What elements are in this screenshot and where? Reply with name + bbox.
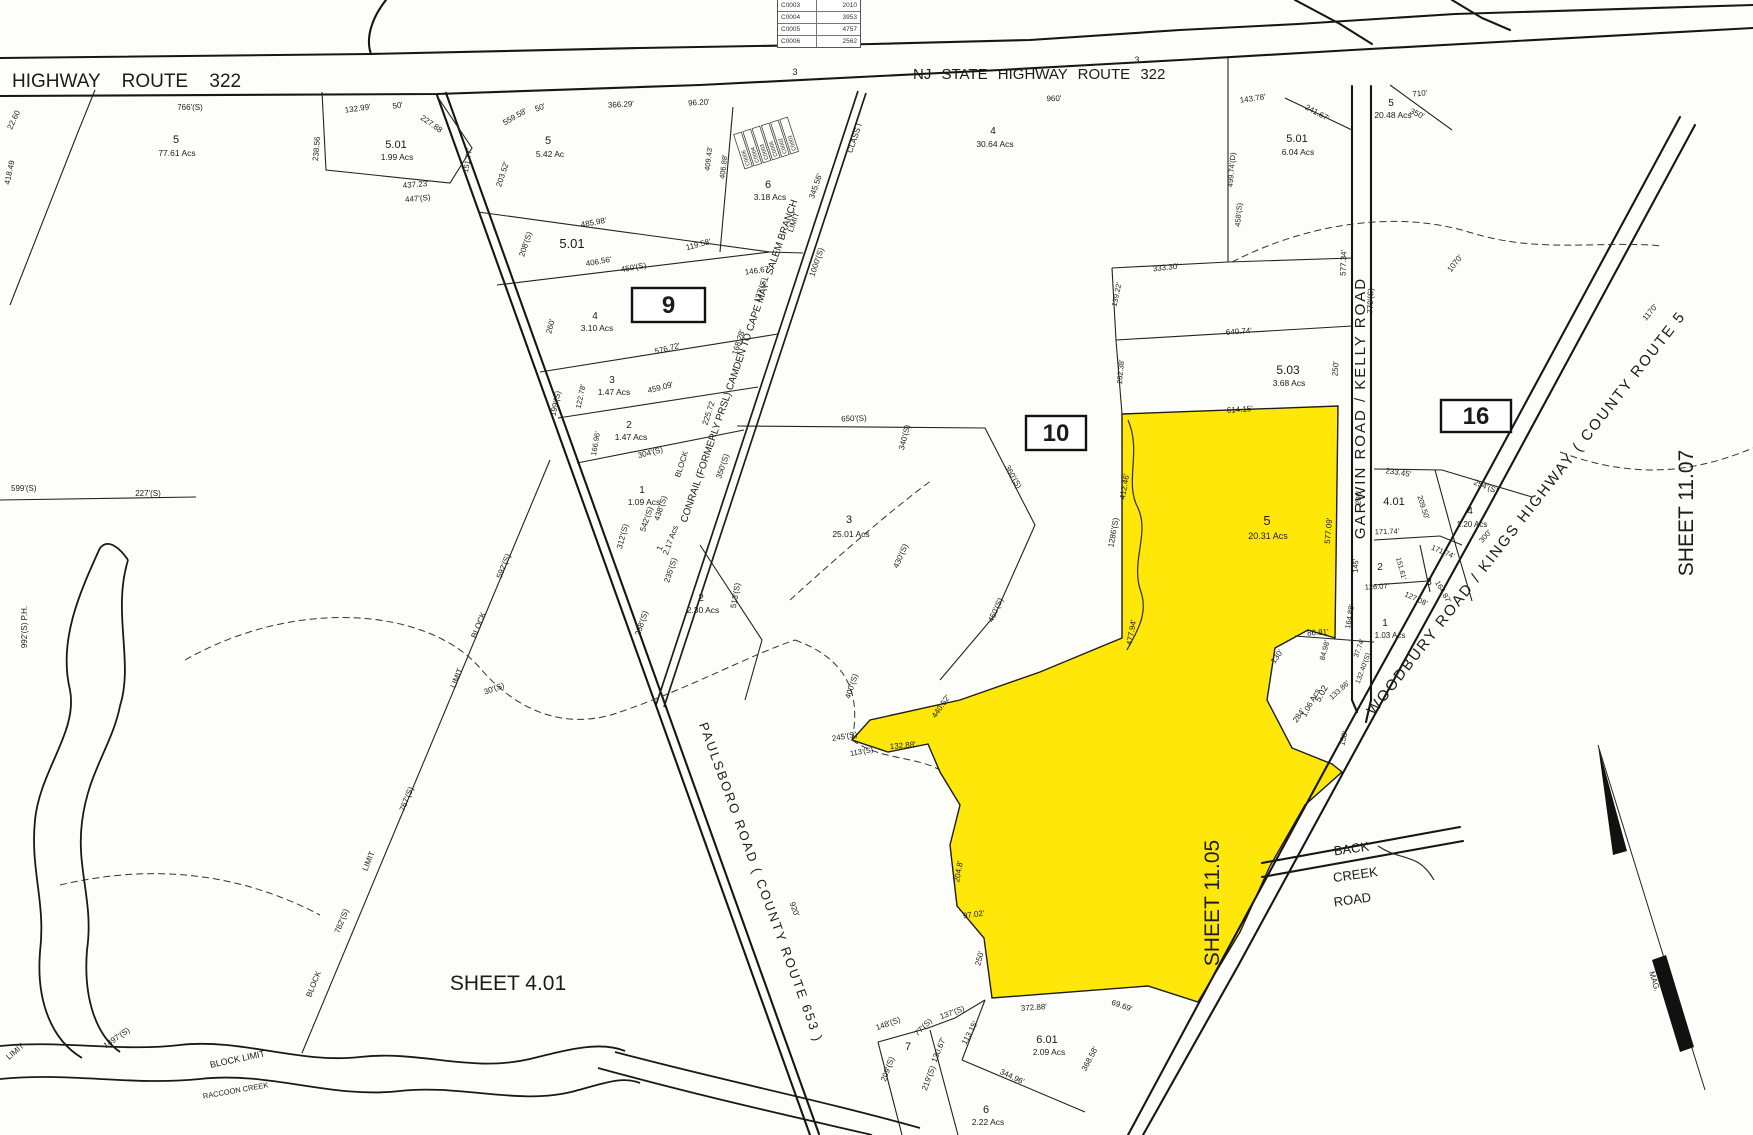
road-back-creek-2: CREEK bbox=[1332, 864, 1379, 885]
dim-203-52: 203.52' bbox=[494, 160, 511, 188]
dim-166-96: 166.96' bbox=[589, 430, 602, 456]
lot5-ne-acres: 20.48 Acs bbox=[1374, 110, 1411, 120]
road-back-creek-1: BACK bbox=[1333, 839, 1370, 859]
block-16-label: 16 bbox=[1441, 400, 1511, 432]
dim-430-s: 430'(S) bbox=[891, 542, 910, 569]
b10-lot2-acres: 2.30 Acs bbox=[687, 605, 720, 615]
unit-value-cell: 2010 bbox=[817, 0, 860, 11]
b10-lot503-acres: 3.68 Acs bbox=[1273, 378, 1306, 388]
b9-lot1-acres: 1.09 Acs bbox=[628, 497, 661, 507]
unit-id-cell: C0006 bbox=[778, 36, 817, 47]
sheet-11-05: SHEET 11.05 bbox=[1201, 840, 1224, 966]
dim-69-69: 69.69' bbox=[1110, 998, 1134, 1014]
dim-164-88: 164.88' bbox=[1343, 603, 1356, 629]
dim-238-56: 238.56 bbox=[311, 136, 322, 162]
dim-139-22: 139.22' bbox=[1110, 281, 1124, 307]
map-line-pline-39 bbox=[1435, 470, 1455, 543]
dim-145: 145' bbox=[1351, 558, 1361, 573]
condo-unit-id: C0005 bbox=[769, 140, 780, 157]
dim-710: 710' bbox=[1412, 88, 1428, 98]
sheet-11-07: SHEET 11.07 bbox=[1675, 450, 1698, 576]
condo-unit-id: C0004 bbox=[750, 146, 761, 163]
dim-650-s: 650'(S) bbox=[841, 414, 867, 424]
unit-id-cell: C0005 bbox=[778, 24, 817, 35]
b10-lot601-num: 6.01 bbox=[1036, 1034, 1057, 1046]
map-line-road-4 bbox=[369, 0, 386, 54]
unit-value-cell: 4757 bbox=[817, 24, 860, 35]
blk-limit-w-2: BLOCK bbox=[469, 610, 488, 639]
map-line-pline-46 bbox=[878, 1042, 902, 1135]
b16-lot4-num: 4 bbox=[1467, 506, 1473, 517]
map-line-creek-61 bbox=[81, 560, 128, 1052]
b9-lot4-acres: 3.10 Acs bbox=[581, 323, 614, 333]
block-10-label-number: 10 bbox=[1043, 420, 1070, 447]
dim-459-09: 459.09' bbox=[647, 380, 675, 395]
condo-unit-id: C0006 bbox=[741, 149, 752, 166]
dim-241-67: 241.67' bbox=[1304, 103, 1332, 123]
dim-372-88: 372.88' bbox=[1021, 1002, 1048, 1013]
map-line-dash-53 bbox=[1232, 221, 1662, 262]
unit-value-cell: 2562 bbox=[817, 36, 860, 47]
blk-limit-w-1: 592'(S) bbox=[495, 552, 513, 579]
dim-200: 200' bbox=[1354, 490, 1364, 505]
blk-limit-w-3: LIMIT bbox=[449, 667, 465, 689]
dim-233-45: 233.45' bbox=[1385, 466, 1412, 479]
unit-id-cell: C0003 bbox=[778, 0, 817, 11]
blk-limit-creek: BLOCK LIMIT bbox=[209, 1048, 266, 1070]
assessment-table-row: C00032010 bbox=[778, 0, 860, 11]
dim-171-74-b: 171.74' bbox=[1430, 543, 1456, 561]
dim-599-s: 599'(S) bbox=[11, 484, 37, 493]
dim-96-20: 96.20' bbox=[688, 97, 710, 107]
map-line-creek-64 bbox=[0, 1077, 640, 1096]
dim-400-s: 400'(S) bbox=[843, 672, 860, 699]
condo-unit-id: C0001 bbox=[787, 134, 798, 151]
block-10-label: 10 bbox=[1026, 416, 1086, 450]
dim-209-50: 209.50' bbox=[1415, 494, 1431, 520]
dim-262-38: 262.38' bbox=[1115, 359, 1126, 385]
dim-50-b: 50' bbox=[534, 101, 547, 113]
route-marker-3b: 3 bbox=[1134, 55, 1139, 65]
dim-151-61: 151.61' bbox=[1394, 557, 1407, 581]
b9-lot1-num: 1 bbox=[639, 485, 645, 496]
hwy-322-right: NJ STATE HIGHWAY ROUTE 322 bbox=[913, 66, 1165, 83]
map-line-pline-45 bbox=[962, 1060, 1085, 1112]
block-9-label: 9 bbox=[632, 288, 705, 322]
dim-126-07: 126.07' bbox=[1364, 581, 1389, 591]
dim-770-s: 770'(S) bbox=[1366, 288, 1376, 314]
dim-450-s-b: 450'(S) bbox=[986, 596, 1005, 623]
blk-limit-s-1: BLOCK bbox=[304, 969, 323, 998]
map-line-creek-57 bbox=[615, 1052, 920, 1128]
blk-limit-rr: BLOCK bbox=[673, 449, 690, 478]
dim-458-s: 458'(S) bbox=[1233, 202, 1244, 227]
b9-lot5-acres: 5.42 Ac bbox=[536, 149, 565, 159]
b9-lot5-num: 5 bbox=[545, 135, 551, 147]
assessment-table-row: C00043953 bbox=[778, 11, 860, 23]
dim-86-81: 86.81' bbox=[1307, 627, 1329, 637]
dim-209-s: 209'(S) bbox=[879, 1055, 896, 1082]
b9-lot4-num: 4 bbox=[592, 311, 598, 322]
map-line-pline-27 bbox=[1228, 258, 1352, 262]
dim-559-58: 559.58' bbox=[501, 106, 528, 127]
lot501-west-num: 5.01 bbox=[385, 139, 406, 151]
map-line-road-1 bbox=[0, 28, 1753, 96]
dim-235-s: 235'(S) bbox=[662, 556, 679, 583]
b10-lot4-acres: 30.64 Acs bbox=[976, 139, 1013, 149]
dim-84-98: 84.98' bbox=[1318, 639, 1332, 661]
raccoon-creek: RACCOON CREEK bbox=[202, 1080, 269, 1100]
dim-767-s: 767'(S) bbox=[398, 785, 416, 812]
block-9-label-number: 9 bbox=[662, 292, 675, 319]
hwy-322-left: HIGHWAY ROUTE 322 bbox=[12, 71, 241, 92]
assessment-table-row: C00054757 bbox=[778, 23, 860, 35]
dim-345-56: 345.56' bbox=[807, 172, 824, 200]
map-line-creek-60 bbox=[34, 548, 100, 1058]
dim-312-s: 312'(S) bbox=[615, 523, 630, 550]
sheet-4-01: SHEET 4.01 bbox=[450, 972, 566, 995]
b16-lot1-num: 1 bbox=[1382, 618, 1388, 629]
unit-id-cell: C0004 bbox=[778, 12, 817, 23]
dim-113-15: 113.15' bbox=[960, 1019, 980, 1046]
map-line-dash-48 bbox=[60, 874, 320, 915]
b16-lot2: 2 bbox=[1377, 562, 1383, 573]
b16-lot1-acres: 1.03 Acs bbox=[1375, 631, 1406, 640]
map-line-pline-25 bbox=[302, 460, 550, 1053]
dim-418-49: 418.49 bbox=[3, 159, 17, 185]
dim-127-08: 127.08' bbox=[1403, 590, 1429, 609]
b10-lot503-num: 5.03 bbox=[1276, 363, 1300, 377]
lot5-ne-num: 5 bbox=[1388, 98, 1394, 109]
b16-lot3: 3 bbox=[1426, 577, 1432, 588]
route-marker-3a: 3 bbox=[792, 67, 797, 77]
b10-lot6-acres: 2.22 Acs bbox=[972, 1117, 1005, 1127]
dim-513-s: 513'(S) bbox=[729, 582, 742, 609]
dim-1170: 1170' bbox=[1641, 302, 1660, 322]
dim-1070: 1070' bbox=[1446, 253, 1465, 274]
dim-485-98: 485.98' bbox=[580, 216, 608, 229]
b10-lot6-num: 6 bbox=[983, 1104, 989, 1116]
dim-133-86: 133.86' bbox=[1327, 678, 1352, 701]
dim-640-74: 640.74' bbox=[1226, 326, 1253, 337]
dim-344-96: 344.96' bbox=[998, 1067, 1026, 1086]
dim-148-s: 148'(S) bbox=[875, 1015, 902, 1032]
dim-219-s: 219'(S) bbox=[920, 1064, 937, 1091]
dim-227-88: 227.88 bbox=[419, 113, 445, 135]
dim-122-78: 122.78' bbox=[574, 383, 588, 409]
dim-113-s: 113'(S) bbox=[849, 745, 874, 758]
map-line-dash-52 bbox=[790, 480, 932, 600]
dim-499-74: 499.74'(D) bbox=[1226, 152, 1238, 188]
dim-447-s: 447'(S) bbox=[405, 193, 432, 204]
map-line-pline-15 bbox=[10, 90, 95, 305]
b16-lot501-acres: 6.04 Acs bbox=[1282, 147, 1315, 157]
b10-lot1-acres: 2.17 Acs bbox=[661, 524, 680, 556]
b9-lot6-num: 6 bbox=[765, 179, 771, 191]
map-line-road-0 bbox=[0, 5, 1753, 58]
dim-132-88: 132.88' bbox=[889, 740, 916, 751]
dim-1286-s: 1286'(S) bbox=[1107, 517, 1121, 548]
b10-lot3-acres: 25.01 Acs bbox=[832, 529, 869, 539]
dim-208-s: 208'(S) bbox=[517, 230, 534, 257]
road-woodbury-kings: WOODBURY ROAD / KINGS HIGHWAY ( COUNTY R… bbox=[1363, 308, 1689, 718]
dim-30-s: 30'(S) bbox=[483, 681, 506, 697]
block-16-label-number: 16 bbox=[1463, 403, 1490, 430]
dim-250-b: 250' bbox=[973, 950, 986, 967]
map-line-pline-17 bbox=[0, 497, 196, 500]
b10-lot7: 7 bbox=[905, 1041, 911, 1053]
b10-lot4-num: 4 bbox=[990, 126, 996, 137]
dim-171-74-a: 171.74' bbox=[1375, 527, 1400, 537]
map-line-pline-32 bbox=[737, 426, 1035, 680]
b10-lot5-acres: 20.31 Acs bbox=[1248, 531, 1288, 541]
map-line-road-3 bbox=[1452, 0, 1510, 30]
b9-lot2-num: 2 bbox=[626, 420, 632, 431]
dim-406-88: 406.88' bbox=[718, 153, 730, 179]
condo-unit-id: C0003 bbox=[760, 143, 771, 160]
assessment-table-row: C00062562 bbox=[778, 35, 860, 47]
blk-limit-s-2: LIMIT bbox=[361, 850, 377, 872]
dim-366-29: 366.29' bbox=[608, 99, 635, 109]
assessment-table: C00032010C00043953C00054757C00062562 bbox=[777, 0, 861, 48]
dim-143-78: 143.78' bbox=[1239, 92, 1266, 105]
dim-300: 300' bbox=[1477, 528, 1493, 545]
b16-lot4-acres: 1.20 Acs bbox=[1457, 520, 1488, 529]
b10-lot601-acres: 2.09 Acs bbox=[1033, 1047, 1066, 1057]
dim-614-15: 614.15' bbox=[1227, 404, 1254, 415]
b10-lot2-num: 2 bbox=[698, 593, 704, 604]
lot5-west-num: 5 bbox=[173, 134, 179, 146]
dim-920: 920' bbox=[788, 901, 802, 919]
dim-22-60: 22.60 bbox=[5, 108, 22, 130]
highlighted-parcel[interactable] bbox=[852, 406, 1342, 1002]
dim-132-99: 132.99' bbox=[344, 102, 371, 115]
b16-lot401: 4.01 bbox=[1383, 496, 1404, 508]
dim-992-s: 992'(S) P.H. bbox=[20, 606, 29, 648]
unit-value-cell: 3953 bbox=[817, 12, 860, 23]
lot5-west-acres: 77.61 Acs bbox=[158, 148, 195, 158]
dim-360-s: 360'(S) bbox=[1003, 463, 1024, 490]
dim-260: 260' bbox=[544, 318, 557, 335]
b9-lot2-acres: 1.47 Acs bbox=[615, 432, 648, 442]
dim-450-s-a: 450'(S) bbox=[620, 261, 647, 274]
dim-304-s: 304'(S) bbox=[637, 445, 664, 460]
dim-782-s: 782'(S) bbox=[333, 907, 351, 934]
map-line-dash-54 bbox=[1560, 448, 1753, 470]
dim-50-a: 50' bbox=[392, 100, 404, 110]
dim-960: 960' bbox=[1046, 94, 1062, 104]
dim-406-56: 406.56' bbox=[585, 255, 613, 268]
dim-409-43: 409.43' bbox=[703, 145, 715, 171]
north-arrow-icon bbox=[1598, 745, 1705, 1090]
dim-368-58: 368.58' bbox=[1080, 1045, 1100, 1073]
tax-map-sheet: 91016C0006C0004C0003C0005C0002C0001HIGHW… bbox=[0, 0, 1753, 1135]
map-line-creek-62 bbox=[100, 544, 128, 560]
b9-lot501: 5.01 bbox=[559, 236, 584, 251]
map-canvas: 91016C0006C0004C0003C0005C0002C0001HIGHW… bbox=[0, 0, 1753, 1135]
b9-lot3-acres: 1.47 Acs bbox=[598, 387, 631, 397]
north-arrow-tail bbox=[1652, 955, 1694, 1052]
b16-lot501-num: 5.01 bbox=[1286, 133, 1307, 145]
condo-unit-strip: C0006C0004C0003C0005C0002C0001 bbox=[734, 117, 799, 169]
dim-227-s: 227'(S) bbox=[135, 489, 161, 498]
road-back-creek-3: ROAD bbox=[1333, 890, 1372, 910]
b10-lot5-num: 5 bbox=[1263, 513, 1270, 528]
lot501-west-acres: 1.99 Acs bbox=[381, 152, 414, 162]
dim-766-s: 766'(S) bbox=[177, 103, 203, 112]
dim-250-garwin: 250' bbox=[1330, 361, 1340, 377]
dim-576-72: 576.72' bbox=[654, 341, 682, 356]
rr-class-i: CLASS I bbox=[845, 122, 864, 154]
dim-151-77: 151.77' bbox=[461, 147, 474, 173]
dim-577-34: 577.34' bbox=[1339, 249, 1349, 276]
north-arrow-tip bbox=[1598, 745, 1627, 855]
map-line-creek-63 bbox=[0, 1044, 625, 1064]
map-line-dash-49 bbox=[185, 617, 620, 719]
dim-437-23: 437.23' bbox=[402, 179, 429, 190]
b9-lot6-acres: 3.18 Acs bbox=[754, 192, 787, 202]
dim-333-30: 333.30' bbox=[1152, 262, 1179, 274]
condo-unit-id: C0002 bbox=[778, 137, 789, 154]
b9-lot3-num: 3 bbox=[609, 375, 615, 386]
map-line-creek-58 bbox=[598, 1068, 872, 1135]
dim-119-58: 119.58' bbox=[685, 237, 712, 252]
dim-150: 150' bbox=[1337, 730, 1350, 747]
b10-lot3-num: 3 bbox=[846, 514, 852, 526]
dim-350-s: 350'(S) bbox=[714, 452, 731, 479]
